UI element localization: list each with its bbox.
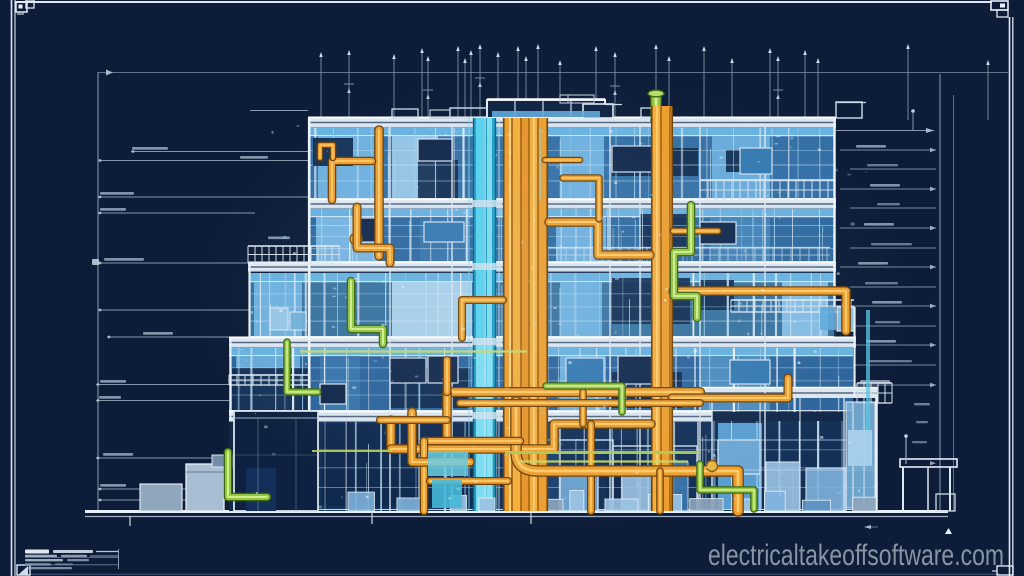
svg-text:electricaltakeoffsoftware.com: electricaltakeoffsoftware.com [708,538,1004,571]
